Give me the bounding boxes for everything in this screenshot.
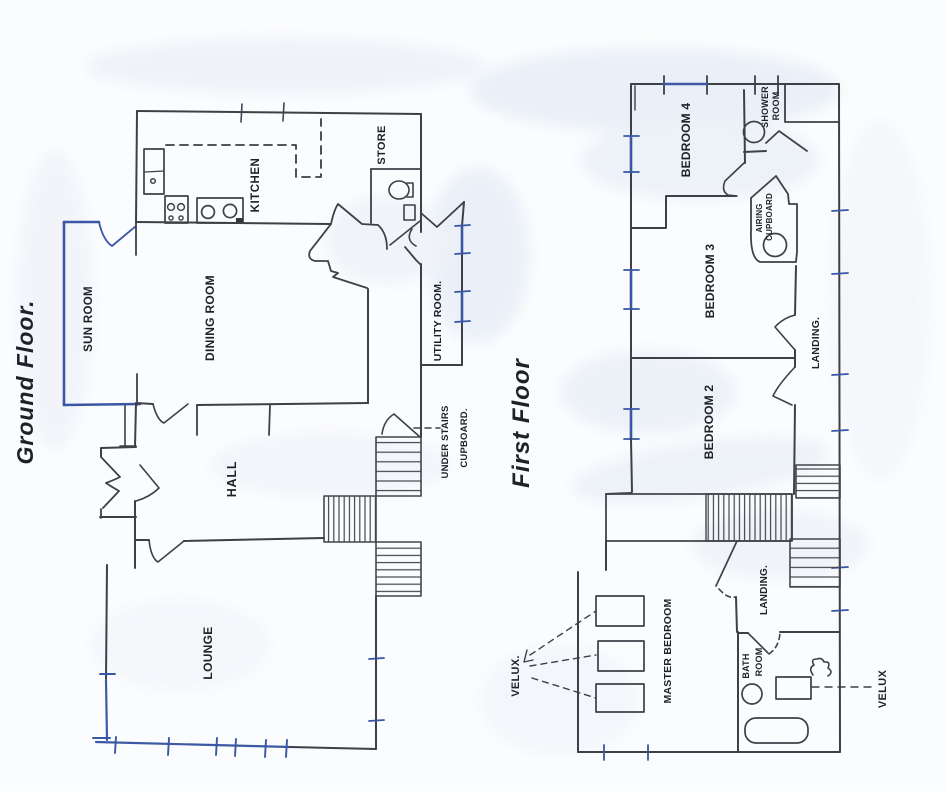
- svg-text:First Floor: First Floor: [508, 358, 535, 488]
- svg-text:ROOM: ROOM: [771, 92, 781, 121]
- svg-text:BEDROOM 4: BEDROOM 4: [679, 103, 693, 178]
- svg-text:LANDING.: LANDING.: [810, 317, 822, 369]
- svg-text:UNDER STAIRS: UNDER STAIRS: [440, 406, 451, 479]
- svg-text:LOUNGE: LOUNGE: [201, 626, 215, 679]
- svg-text:UTILITY ROOM.: UTILITY ROOM.: [432, 281, 444, 362]
- svg-text:MASTER BEDROOM: MASTER BEDROOM: [662, 599, 674, 704]
- svg-text:STORE: STORE: [376, 125, 388, 164]
- svg-text:CUPBOARD.: CUPBOARD.: [459, 408, 470, 467]
- svg-text:SHOWER: SHOWER: [760, 86, 770, 128]
- svg-text:CUPBOARD: CUPBOARD: [765, 193, 774, 241]
- svg-text:Ground Floor.: Ground Floor.: [12, 299, 38, 464]
- svg-text:VELUX.: VELUX.: [510, 655, 522, 697]
- svg-text:BATH: BATH: [741, 653, 751, 678]
- svg-text:HALL: HALL: [225, 461, 239, 498]
- svg-text:SUN ROOM: SUN ROOM: [83, 286, 95, 352]
- svg-text:ROOM: ROOM: [754, 648, 764, 677]
- svg-text:BEDROOM 2: BEDROOM 2: [702, 385, 716, 460]
- svg-text:DINING ROOM: DINING ROOM: [203, 275, 217, 361]
- svg-text:KITCHEN: KITCHEN: [250, 158, 262, 213]
- svg-text:VELUX: VELUX: [877, 670, 889, 709]
- svg-text:AIRING: AIRING: [755, 203, 764, 232]
- svg-text:BEDROOM 3: BEDROOM 3: [703, 244, 717, 319]
- svg-text:LANDING.: LANDING.: [759, 565, 770, 615]
